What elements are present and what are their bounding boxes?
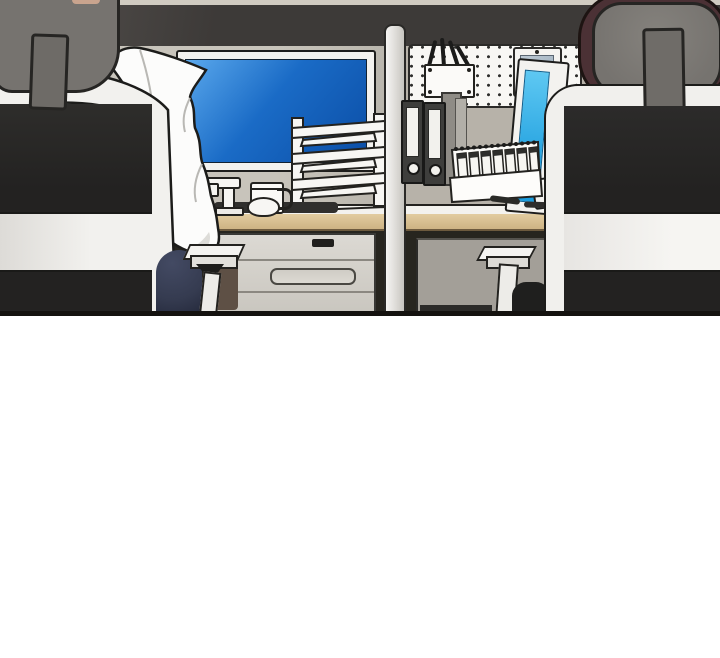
drawer-seam [214,291,374,293]
comic-panel-office-scene [0,0,720,316]
drawer-handle [270,268,356,285]
binder-spine-label [406,107,419,157]
chair-back-band-right [564,212,720,272]
binder-eyelet [407,162,420,175]
chair-back-left [0,104,152,316]
drawer-slot [312,239,334,247]
binder-spine-label [428,109,441,159]
binder-eyelet [429,164,442,177]
paper-tray-organizer [286,112,392,214]
tablet-camera-dot [535,50,539,54]
binder [401,100,424,184]
mouse [247,197,280,217]
chair-headrest-strap-right [642,28,686,117]
binder [423,102,446,186]
hair-sliver [72,0,100,4]
chair-headrest-strap-left [29,33,70,110]
comic-page [0,0,720,658]
chair-back-right [564,106,720,316]
page-whitespace [0,316,720,658]
chair-back-band-left [0,212,152,272]
